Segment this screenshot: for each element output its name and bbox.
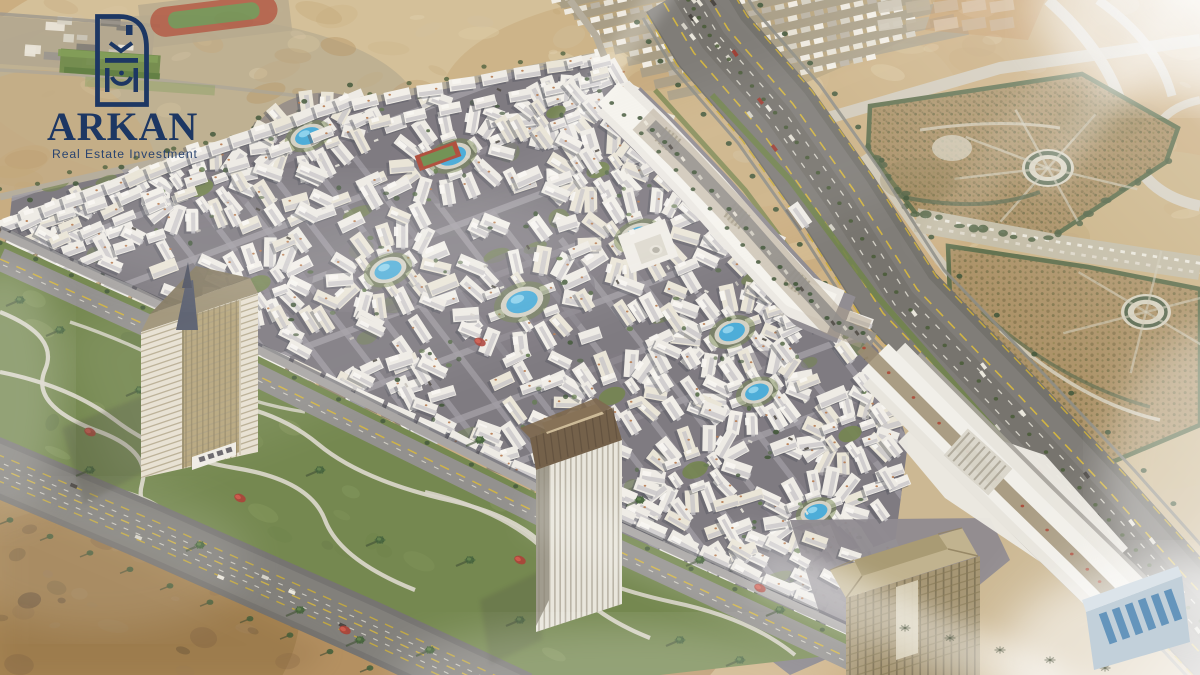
svg-text:ARKAN: ARKAN <box>47 104 198 149</box>
svg-text:Real Estate Investment: Real Estate Investment <box>52 147 198 161</box>
